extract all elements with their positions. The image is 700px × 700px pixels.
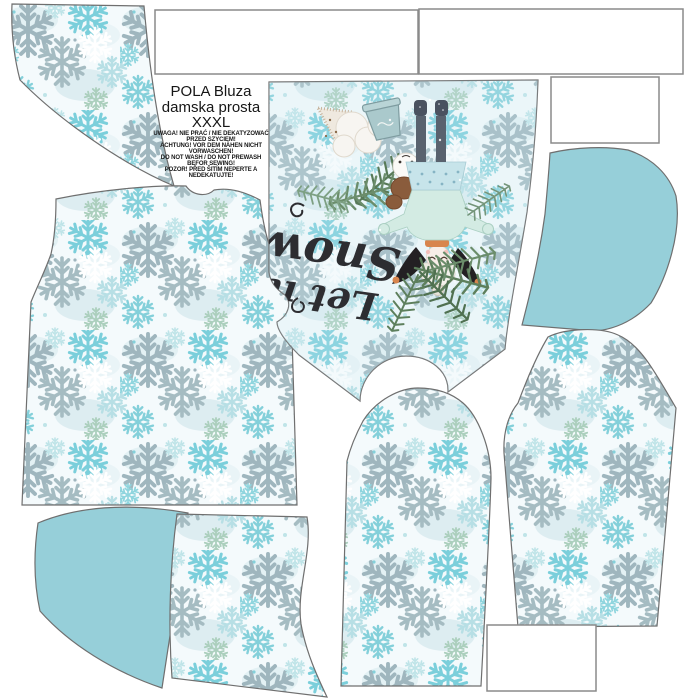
blank-box-bottom [487,625,596,691]
piece-sleeve-right [504,330,676,627]
warning-line: DO NOT WASH / DO NOT PREWASH [150,155,272,161]
piece-hood-bottom-center [170,514,327,697]
warning-line: UWAGA! NIE PRAĆ / NIE DEKATYZOWAĆ [150,131,272,137]
pattern-title-size: XXXL [150,115,272,131]
piece-hood-teal-bottom-left [35,507,188,688]
warning-line: NEDEKATUJTE! [150,173,272,179]
warning-line: POZOR! PŘED ŠITÍM NEPERTE A [150,167,272,173]
fabric-pattern-sheet: Snow Let it POLA Bluza damska prosta XXX… [0,0,700,700]
pattern-title-line1: POLA Bluza [150,84,272,100]
blank-box-top-left [155,10,418,74]
blank-box-right [551,77,659,143]
pattern-sheet-svg: Snow Let it [0,0,700,700]
pattern-title-line2: damska prosta [150,100,272,116]
pattern-label: POLA Bluza damska prosta XXXL UWAGA! NIE… [150,84,272,179]
piece-sleeve-center [341,388,491,686]
warning-line: ACHTUNG! VOR DEM NÄHEN NICHT [150,143,272,149]
blank-box-top-right [419,9,683,74]
piece-back-bodice [22,186,297,505]
piece-hood-teal-right [522,148,677,331]
